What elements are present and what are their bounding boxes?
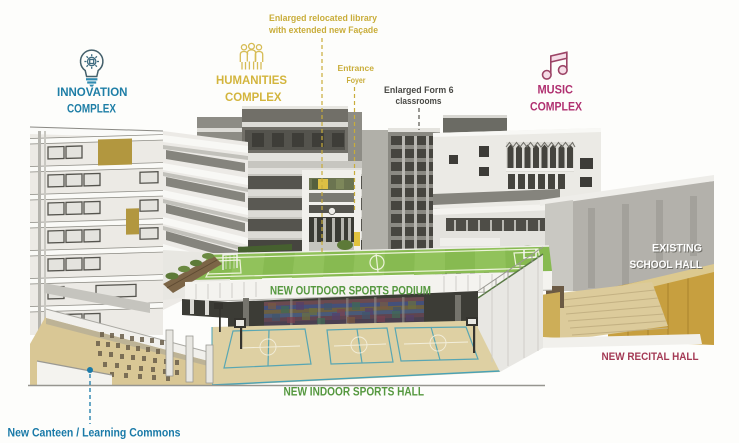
svg-text:INNOVATION: INNOVATION <box>57 85 128 99</box>
svg-text:SCHOOL HALL: SCHOOL HALL <box>630 259 703 271</box>
svg-text:New Canteen / Learning Commons: New Canteen / Learning Commons <box>8 426 181 440</box>
svg-text:Foyer: Foyer <box>347 75 367 85</box>
svg-text:NEW INDOOR SPORTS HALL: NEW INDOOR SPORTS HALL <box>284 387 425 399</box>
svg-text:HUMANITIES: HUMANITIES <box>216 73 287 87</box>
svg-text:MUSIC: MUSIC <box>538 83 574 97</box>
svg-text:Enlarged Form 6: Enlarged Form 6 <box>384 85 454 95</box>
svg-text:with extended new Façade: with extended new Façade <box>268 25 378 35</box>
svg-text:Entrance: Entrance <box>338 63 375 73</box>
svg-text:EXISTING: EXISTING <box>652 243 702 255</box>
svg-text:COMPLEX: COMPLEX <box>530 100 582 114</box>
svg-text:classrooms: classrooms <box>396 96 442 106</box>
svg-text:NEW OUTDOOR SPORTS PODIUM: NEW OUTDOOR SPORTS PODIUM <box>270 286 431 298</box>
svg-text:NEW RECITAL HALL: NEW RECITAL HALL <box>602 351 699 363</box>
svg-text:COMPLEX: COMPLEX <box>67 102 116 116</box>
svg-text:COMPLEX: COMPLEX <box>225 90 282 104</box>
svg-text:Enlarged relocated library: Enlarged relocated library <box>269 13 377 23</box>
